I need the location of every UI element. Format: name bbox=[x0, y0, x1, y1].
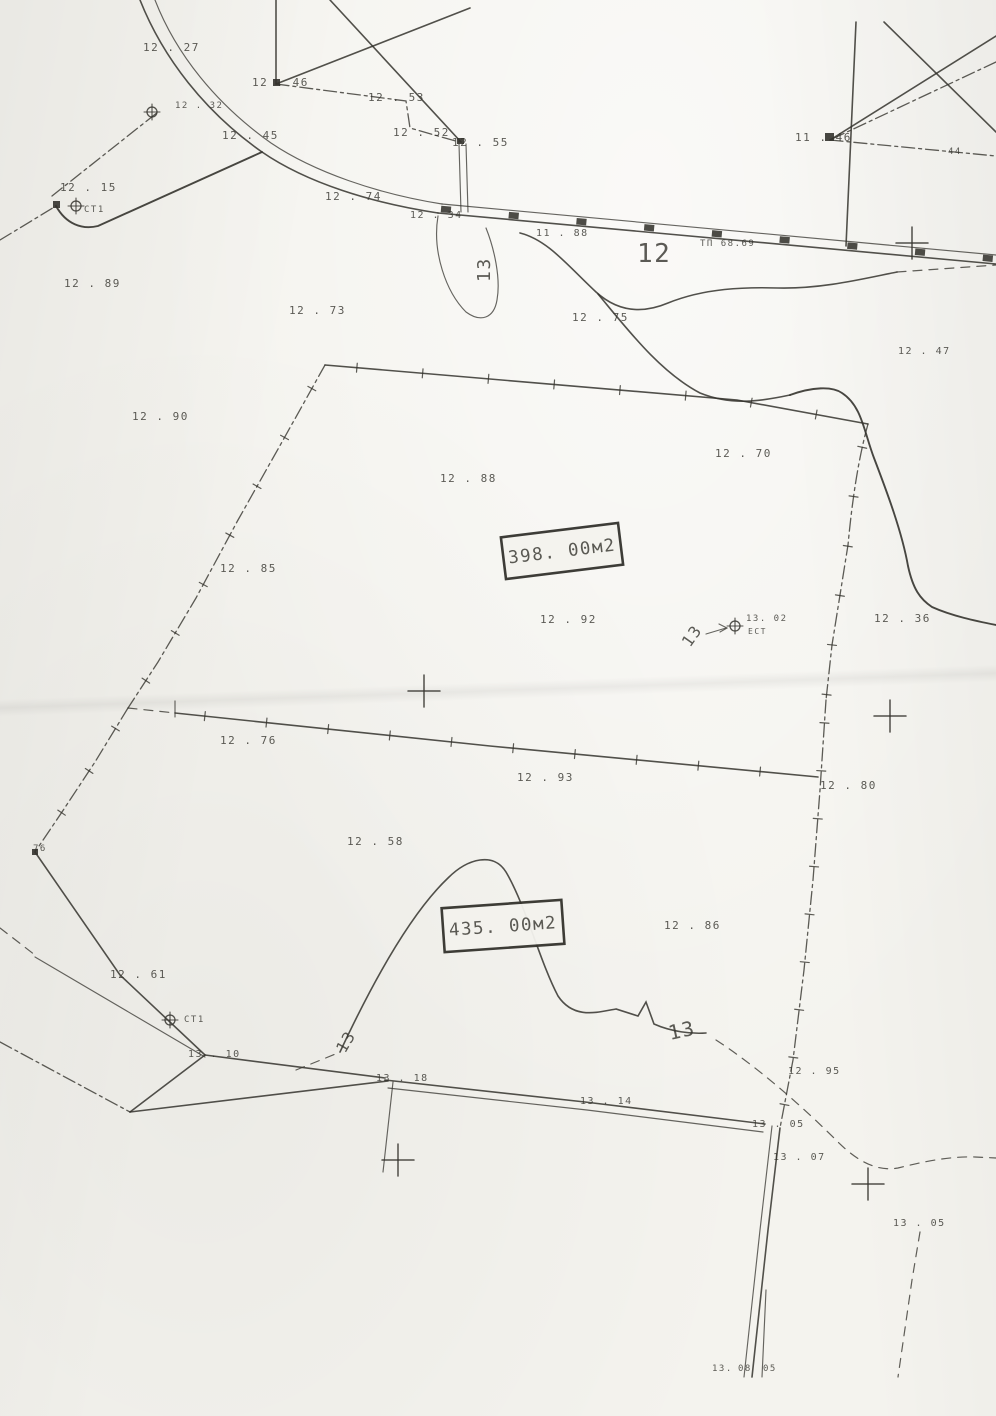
boundary-tick bbox=[328, 725, 329, 734]
boundary-tick bbox=[828, 644, 837, 645]
boundary-tick bbox=[815, 410, 817, 419]
spot-elevation-label: 12 . 86 bbox=[664, 919, 721, 932]
contour-label: 13 bbox=[678, 621, 706, 650]
spot-elevation-label: ТП 68.69 bbox=[700, 239, 755, 249]
contour-lines-13-south bbox=[296, 860, 996, 1377]
boundary-tick bbox=[281, 435, 289, 439]
contour-label: 13 bbox=[474, 257, 495, 282]
spot-elevation-label: 12 . 36 bbox=[874, 612, 931, 625]
spot-elevation-label: 08 bbox=[738, 1364, 752, 1374]
spot-elevation-label: 13 . 14 bbox=[580, 1096, 633, 1107]
spot-elevation-label: 13 . 05 bbox=[752, 1119, 805, 1130]
spot-elevation-label: 13 . 07 bbox=[773, 1152, 826, 1163]
left-edge-dashdot bbox=[0, 206, 56, 240]
spot-elevation-label: 12 . 47 bbox=[898, 346, 951, 357]
spot-elevation-label: 13. bbox=[712, 1364, 733, 1374]
boundary-tick bbox=[780, 1104, 789, 1106]
spot-elevation-label: 12 . 46 bbox=[252, 76, 309, 89]
boundary-tick bbox=[513, 744, 514, 753]
spot-elevation-label: 12 . 61 bbox=[110, 968, 167, 981]
spot-elevation-label: 12 . 52 bbox=[393, 126, 450, 139]
spot-elevation-label: 12 . 88 bbox=[440, 472, 497, 485]
boundary-tick bbox=[800, 962, 809, 963]
spot-elevation-label: 12 . 70 bbox=[715, 447, 772, 460]
spot-elevation-label: 12 . 95 bbox=[788, 1066, 841, 1077]
boundary-tick bbox=[789, 1057, 798, 1058]
tangle-line-d bbox=[130, 1055, 205, 1112]
arrow-head bbox=[719, 624, 727, 632]
spot-elevation-label: 76 bbox=[33, 844, 47, 854]
south-road-lower bbox=[388, 1088, 763, 1132]
boundary-tick bbox=[822, 694, 831, 695]
tr-dashdot-cross bbox=[830, 62, 996, 140]
spot-elevation-label: 12 . 92 bbox=[540, 613, 597, 626]
boundary-tick bbox=[389, 731, 390, 740]
station-marker bbox=[727, 618, 743, 634]
grid-crosses bbox=[382, 227, 928, 1200]
tr-dashdot-right bbox=[830, 140, 996, 156]
south-road-upper bbox=[385, 1080, 765, 1124]
boundary-tick bbox=[308, 386, 316, 390]
boundary-tick bbox=[554, 380, 555, 389]
boundary-tick bbox=[58, 810, 65, 815]
culvert-vertical-b bbox=[466, 144, 468, 212]
spot-elevation-label: 12 . 85 bbox=[220, 562, 277, 575]
spot-elevation-label: ЕСТ bbox=[748, 627, 767, 636]
boundary-tick bbox=[817, 771, 826, 772]
spot-elevation-label: 12 . 45 bbox=[222, 129, 279, 142]
divider-stub bbox=[128, 708, 175, 713]
spot-elevation-label: 12 . 93 bbox=[517, 771, 574, 784]
spot-elevation-label: СТ1 bbox=[84, 205, 105, 215]
boundary-tick bbox=[620, 386, 621, 395]
contour-label: 13 bbox=[332, 1027, 360, 1056]
grid-cross bbox=[874, 700, 906, 732]
spot-elevation-label: 11 . 46 bbox=[795, 131, 852, 144]
southeast-dash-line bbox=[898, 1232, 920, 1377]
culvert-vertical-a bbox=[459, 144, 461, 212]
spot-elevation-labels: 12 . 2712 . 4612 . 5312 . 5212 . 5512 . … bbox=[33, 41, 962, 1374]
scanned-survey-map: 12 . 2712 . 4612 . 5312 . 5212 . 5512 . … bbox=[0, 0, 996, 1416]
boundary-tick bbox=[112, 726, 120, 731]
grid-cross bbox=[408, 675, 440, 707]
spot-elevation-label: 12 . 73 bbox=[289, 304, 346, 317]
spot-elevation-label: 12 . 27 bbox=[143, 41, 200, 54]
parcel-435-boundaries bbox=[32, 700, 826, 1128]
contour-13s-lead-dash bbox=[296, 1053, 338, 1070]
parcel1-right-edge bbox=[826, 424, 868, 700]
boundary-tick bbox=[698, 761, 699, 770]
spot-elevation-label: 12 . 55 bbox=[452, 136, 509, 149]
stream-arc bbox=[790, 388, 996, 625]
spot-elevation-label: 12 . 15 bbox=[60, 181, 117, 194]
spot-elevation-label: 12 . 74 bbox=[325, 190, 382, 203]
cadastral-map-canvas: 12 . 2712 . 4612 . 5312 . 5212 . 5512 . … bbox=[0, 0, 996, 1416]
contour-12-dash-right bbox=[897, 265, 996, 272]
boundary-tick bbox=[488, 374, 489, 383]
spot-elevation-label: 13 . 10 bbox=[188, 1049, 241, 1060]
spot-elevation-label: 12 . 76 bbox=[220, 734, 277, 747]
boundary-tick bbox=[204, 712, 205, 721]
tangle-dash-g bbox=[0, 928, 35, 955]
station-marker bbox=[68, 198, 84, 214]
boundary-tick bbox=[835, 595, 844, 596]
boundary-tick bbox=[795, 1009, 804, 1010]
spot-elevation-label: 12 . 32 bbox=[175, 101, 223, 111]
arrow-to-station bbox=[706, 628, 726, 634]
top-left-parcel-lines bbox=[0, 0, 470, 240]
contour-13s-hill bbox=[340, 860, 706, 1052]
spot-elevation-label: 12 . 53 bbox=[368, 91, 425, 104]
bottom-right-lines bbox=[744, 1126, 780, 1377]
vertex-blob bbox=[53, 201, 60, 208]
boundary-tick bbox=[760, 767, 761, 776]
bottom-double-line-b bbox=[744, 1126, 772, 1377]
boundary-tick bbox=[357, 363, 358, 372]
bottom-double-line-a bbox=[752, 1128, 780, 1377]
parcel1-top-edge bbox=[325, 365, 868, 424]
boundary-tick bbox=[85, 768, 93, 773]
boundary-tick bbox=[849, 496, 858, 497]
spot-elevation-label: 12 . 89 bbox=[64, 277, 121, 290]
contour-label: 13 bbox=[666, 1016, 697, 1045]
spot-elevation-label: СТ1 bbox=[184, 1015, 205, 1025]
grid-cross bbox=[852, 1168, 884, 1200]
boundary-tick bbox=[820, 723, 829, 724]
boundary-tick bbox=[226, 533, 234, 537]
parcel-area-boxes: 398. 00м2435. 00м2 bbox=[442, 523, 624, 952]
spot-elevation-label: 13 . 05 bbox=[893, 1218, 946, 1229]
parcel2-left-solid bbox=[35, 852, 205, 1055]
boundary-tick bbox=[422, 369, 423, 378]
parcel2-right-edge bbox=[780, 700, 826, 1128]
station-marker bbox=[144, 104, 160, 120]
contour-label: 12 bbox=[637, 239, 671, 269]
boundary-tick bbox=[750, 398, 752, 407]
parcel2-left-dashdot bbox=[35, 708, 128, 852]
south-road-and-tangle bbox=[0, 928, 765, 1172]
marker-arrow bbox=[706, 624, 727, 634]
boundary-tick bbox=[253, 484, 261, 488]
spot-elevation-label: 12 . 58 bbox=[347, 835, 404, 848]
tangle-dashdot-f bbox=[0, 1042, 130, 1112]
boundary-tick bbox=[843, 545, 852, 546]
station-marker bbox=[162, 1012, 178, 1028]
boundary-tick bbox=[813, 818, 822, 819]
tr-diagonal-x bbox=[884, 22, 996, 132]
spot-elevation-label: 12 . 80 bbox=[820, 779, 877, 792]
parcel-area-box: 435. 00м2 bbox=[442, 900, 565, 952]
boundary-diagonal-b bbox=[330, 0, 461, 142]
boundary-tick bbox=[805, 914, 814, 915]
spot-elevation-label: 13. 02 bbox=[746, 614, 788, 624]
boundary-tick bbox=[685, 391, 686, 400]
spot-elevation-label: 13 . 18 bbox=[376, 1073, 429, 1084]
tangle-line-e bbox=[130, 1081, 388, 1112]
parcel-area-box: 398. 00м2 bbox=[501, 523, 623, 579]
spot-elevation-label: 12 . 75 bbox=[572, 311, 629, 324]
grid-cross bbox=[382, 1144, 414, 1176]
vertical-below-road bbox=[383, 1082, 393, 1172]
spot-elevation-label: 12 . 34 bbox=[410, 210, 463, 221]
boundary-tick bbox=[266, 718, 267, 727]
spot-elevation-label: 11 . 88 bbox=[536, 228, 589, 239]
spot-elevation-label: 05 bbox=[763, 1364, 777, 1374]
boundary-tick bbox=[636, 755, 637, 764]
boundary-tick bbox=[451, 737, 452, 746]
boundary-tick bbox=[199, 582, 207, 586]
boundary-tick bbox=[171, 631, 179, 636]
boundary-tick bbox=[574, 750, 575, 759]
boundary-tick bbox=[810, 866, 819, 867]
spot-elevation-label: 44 bbox=[948, 147, 962, 157]
boundary-tick bbox=[142, 678, 150, 683]
contour-13s-dash-east bbox=[716, 1040, 996, 1169]
spot-elevation-label: 12 . 90 bbox=[132, 410, 189, 423]
